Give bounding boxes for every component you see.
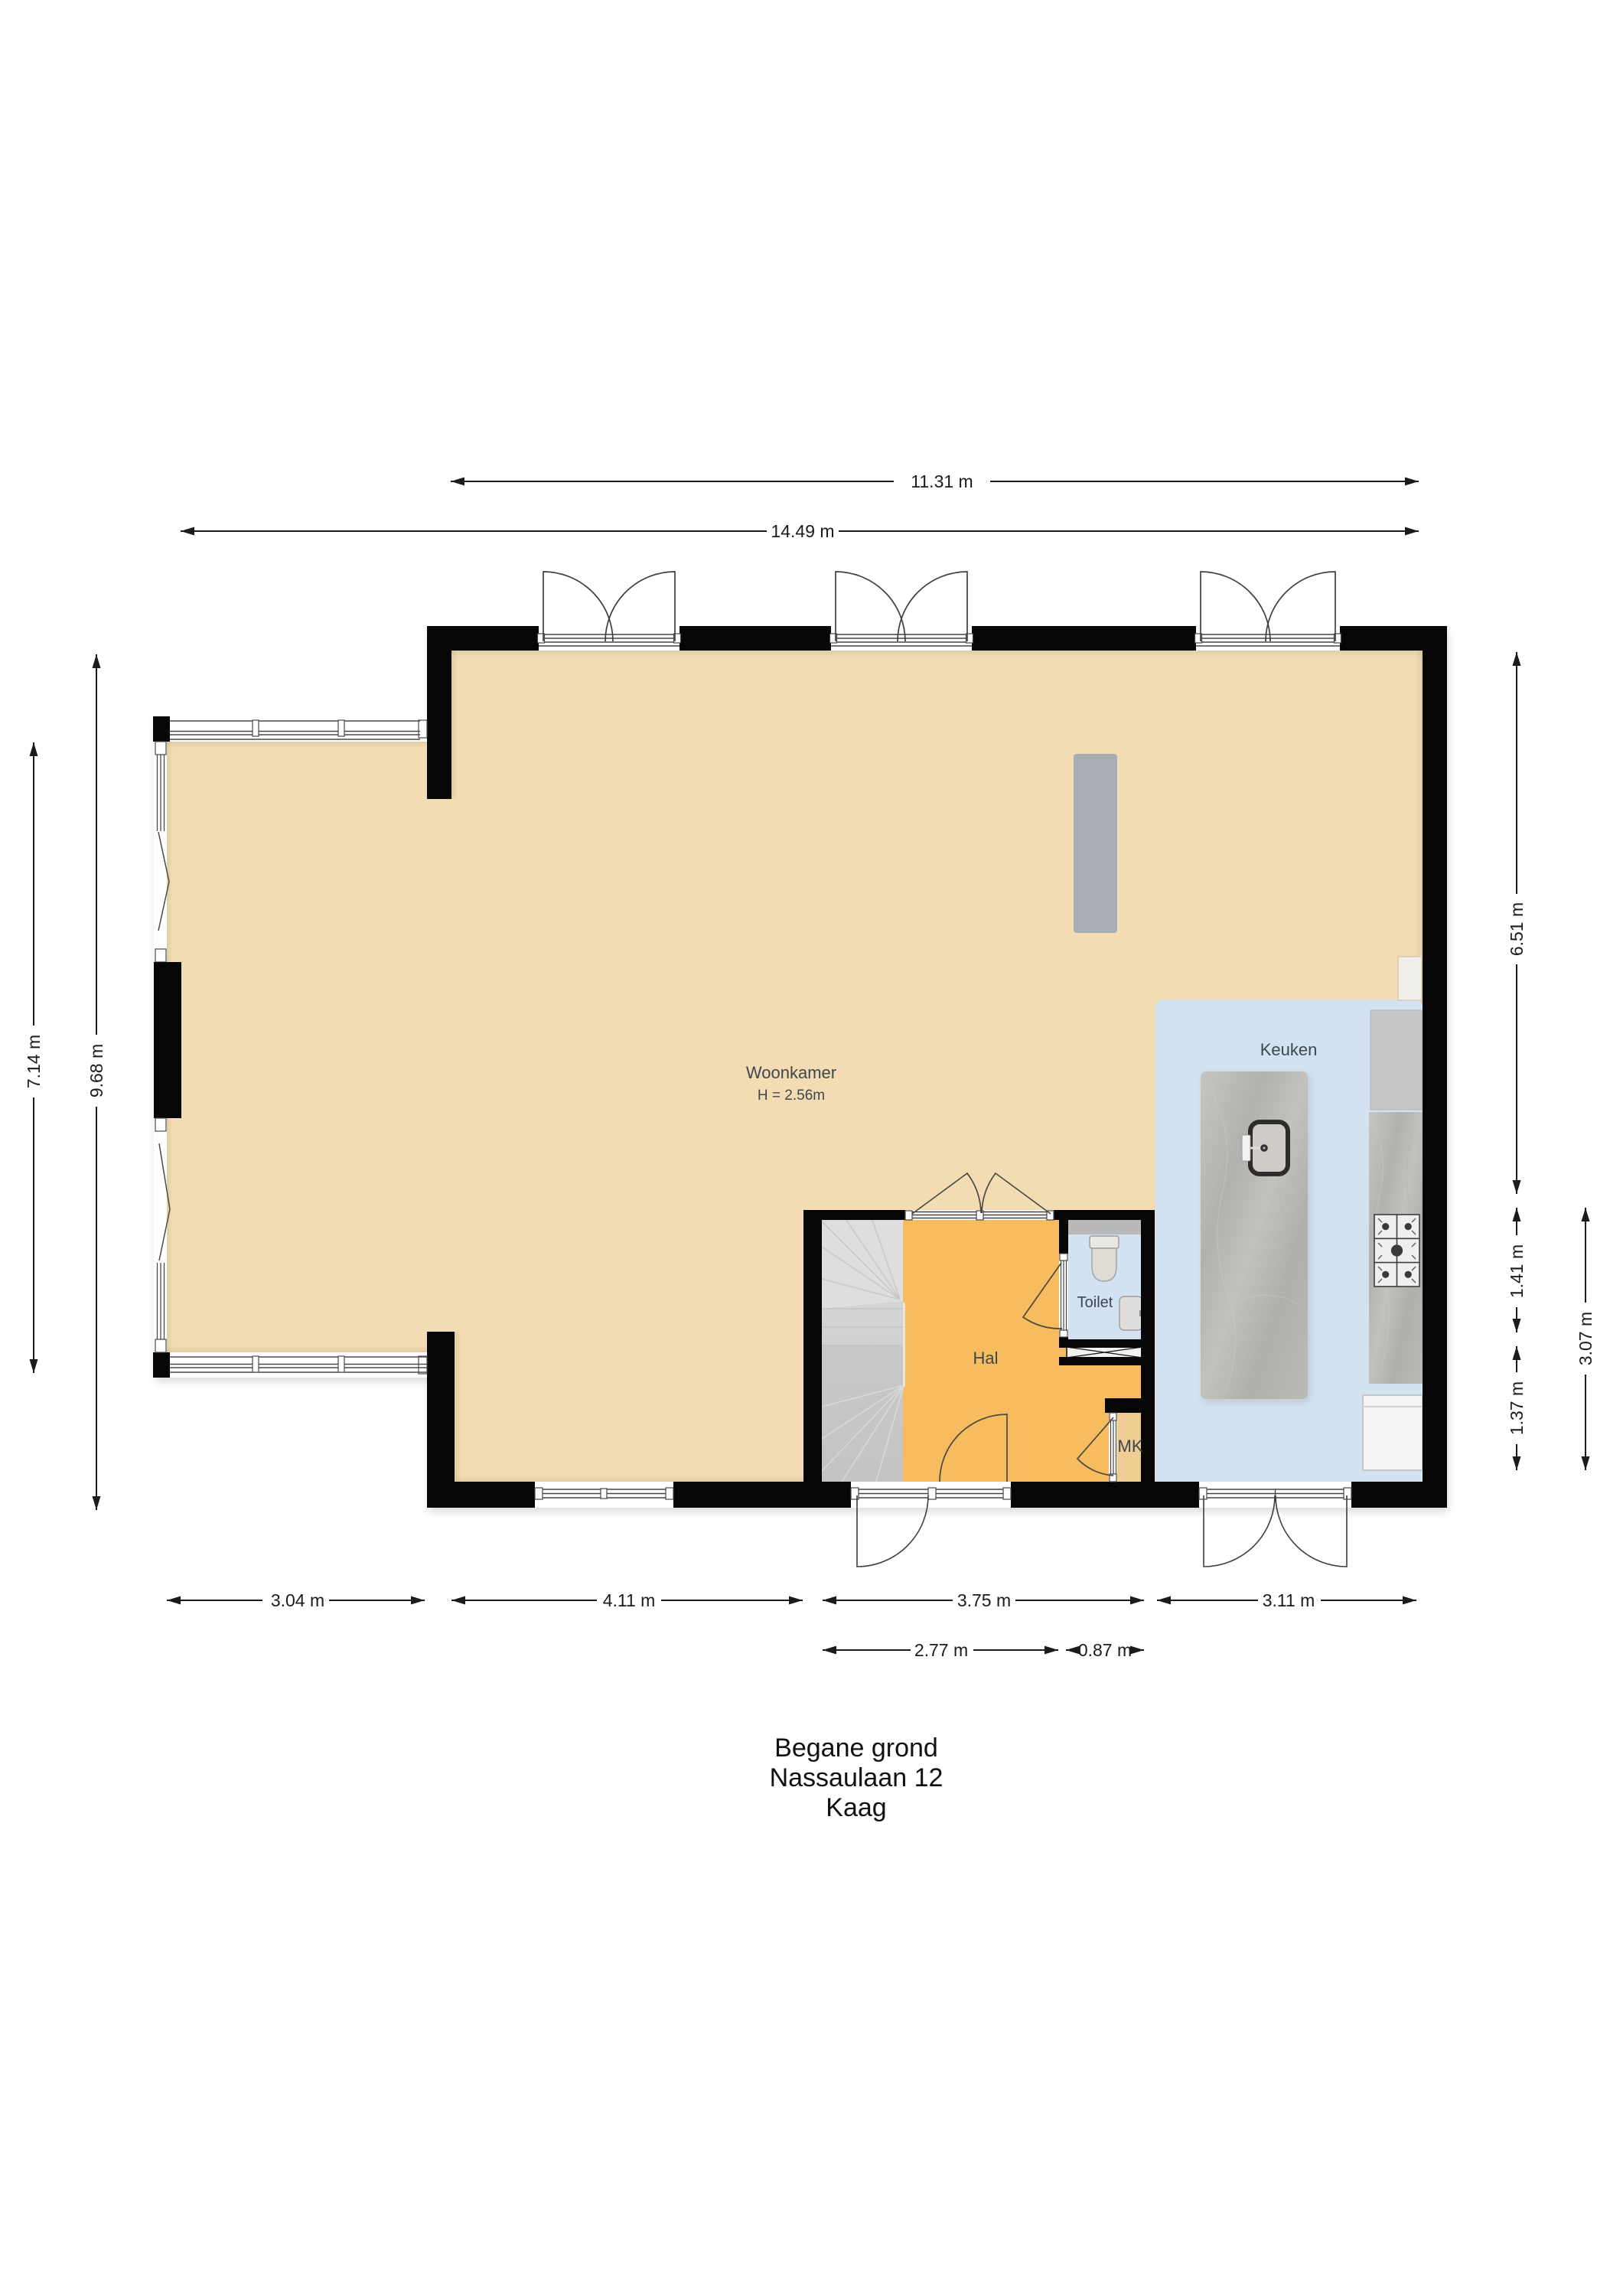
svg-text:Keuken: Keuken [1260, 1040, 1318, 1059]
svg-text:Woonkamer: Woonkamer [746, 1063, 836, 1082]
svg-text:0.87 m: 0.87 m [1078, 1640, 1132, 1660]
svg-text:2.77 m: 2.77 m [914, 1640, 968, 1660]
svg-text:4.11 m: 4.11 m [603, 1590, 656, 1610]
svg-text:Begane grond: Begane grond [774, 1733, 938, 1763]
svg-text:7.14 m: 7.14 m [24, 1035, 44, 1088]
svg-text:Kaag: Kaag [826, 1793, 886, 1822]
svg-text:3.11 m: 3.11 m [1263, 1590, 1315, 1610]
svg-text:11.31 m: 11.31 m [911, 471, 973, 491]
svg-text:Toilet: Toilet [1077, 1294, 1113, 1311]
svg-text:3.04 m: 3.04 m [271, 1590, 324, 1610]
svg-text:3.75 m: 3.75 m [957, 1590, 1011, 1610]
svg-text:6.51 m: 6.51 m [1507, 902, 1527, 956]
svg-text:14.49 m: 14.49 m [771, 521, 834, 541]
svg-text:1.37 m: 1.37 m [1507, 1381, 1527, 1435]
svg-text:Hal: Hal [973, 1349, 998, 1368]
svg-text:Nassaulaan 12: Nassaulaan 12 [770, 1763, 943, 1792]
svg-text:MK: MK [1118, 1437, 1143, 1456]
svg-text:9.68 m: 9.68 m [86, 1044, 106, 1097]
svg-text:1.41 m: 1.41 m [1507, 1244, 1527, 1298]
svg-text:3.07 m: 3.07 m [1576, 1312, 1595, 1365]
svg-text:H = 2.56m: H = 2.56m [758, 1088, 825, 1104]
